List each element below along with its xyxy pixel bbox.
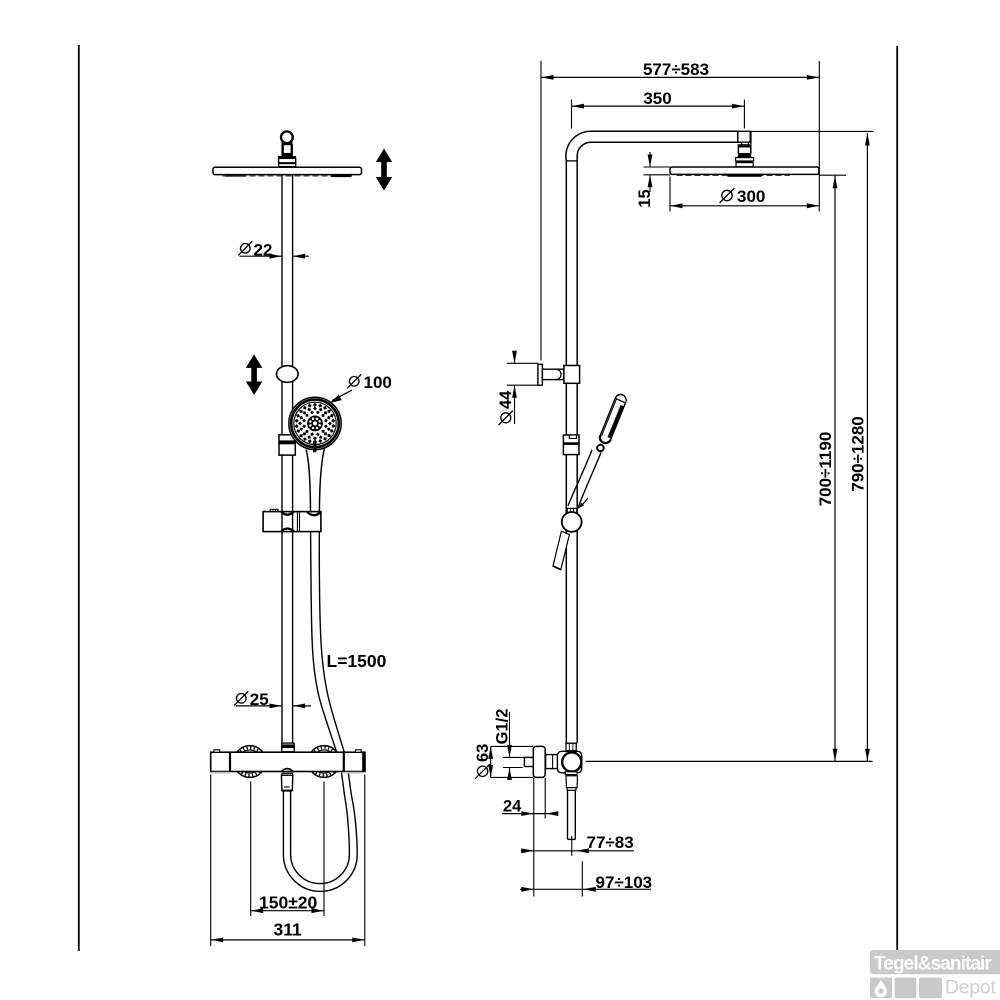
- svg-text:15: 15: [636, 189, 654, 207]
- svg-text:44: 44: [497, 390, 515, 409]
- svg-text:790÷1280: 790÷1280: [849, 416, 868, 492]
- svg-text:G1/2: G1/2: [494, 709, 512, 745]
- svg-text:300: 300: [737, 187, 765, 206]
- svg-text:97÷103: 97÷103: [596, 873, 653, 892]
- svg-text:63: 63: [474, 744, 492, 762]
- svg-text:577÷583: 577÷583: [643, 60, 709, 79]
- svg-text:Depot: Depot: [945, 976, 996, 998]
- svg-text:100: 100: [364, 373, 392, 392]
- svg-text:150±20: 150±20: [259, 892, 318, 912]
- svg-text:700÷1190: 700÷1190: [816, 432, 835, 507]
- svg-text:Tegel&sanitair: Tegel&sanitair: [874, 953, 992, 974]
- svg-text:24: 24: [503, 797, 522, 815]
- svg-text:77÷83: 77÷83: [587, 833, 634, 852]
- svg-text:350: 350: [643, 89, 671, 108]
- svg-text:L=1500: L=1500: [327, 651, 387, 671]
- svg-text:311: 311: [274, 920, 302, 940]
